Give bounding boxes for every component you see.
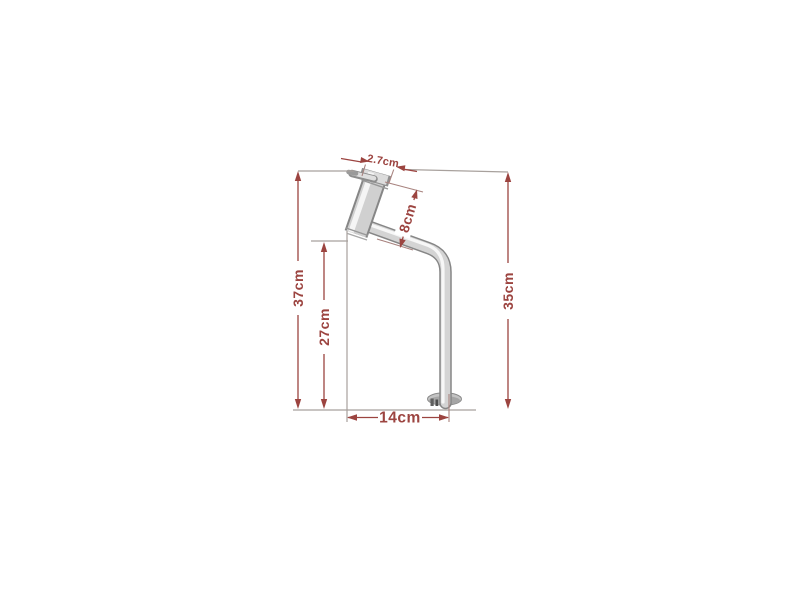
arrow-up-icon bbox=[295, 171, 301, 181]
faucet-spout-pipe bbox=[369, 225, 446, 404]
dimension-arrows bbox=[295, 157, 511, 421]
extension-lines bbox=[293, 170, 508, 423]
faucet-dimension-diagram: 37cm 27cm 35cm 8cm 2.7cm 14cm bbox=[0, 0, 810, 590]
arrow-up-right-icon bbox=[411, 190, 417, 200]
arrow-down-icon bbox=[505, 399, 511, 409]
dim-label-37cm: 37cm bbox=[290, 269, 306, 307]
handle-tip bbox=[349, 172, 357, 174]
arrow-down-icon bbox=[321, 399, 327, 409]
arrow-down-icon bbox=[295, 399, 301, 409]
dim-label-27cm: 27cm bbox=[316, 308, 332, 346]
arrow-left-icon bbox=[347, 414, 357, 420]
arrow-up-icon bbox=[505, 172, 511, 182]
dim-label-2.7cm: 2.7cm bbox=[366, 153, 400, 170]
dimension-lines bbox=[298, 159, 508, 418]
label-backgrounds bbox=[289, 152, 517, 425]
body-top-extension bbox=[385, 182, 423, 192]
dim-label-35cm: 35cm bbox=[500, 272, 516, 310]
base-fitting-detail bbox=[436, 400, 439, 407]
arrow-up-icon bbox=[321, 242, 327, 252]
product-dimension-image: 37cm 27cm 35cm 8cm 2.7cm 14cm bbox=[0, 0, 810, 590]
base-fitting-detail bbox=[431, 399, 434, 407]
top-extension-right bbox=[404, 170, 508, 173]
dim-label-8cm: 8cm bbox=[396, 202, 420, 235]
arrow-right-icon bbox=[439, 414, 449, 420]
dim-label-14cm: 14cm bbox=[379, 410, 421, 427]
